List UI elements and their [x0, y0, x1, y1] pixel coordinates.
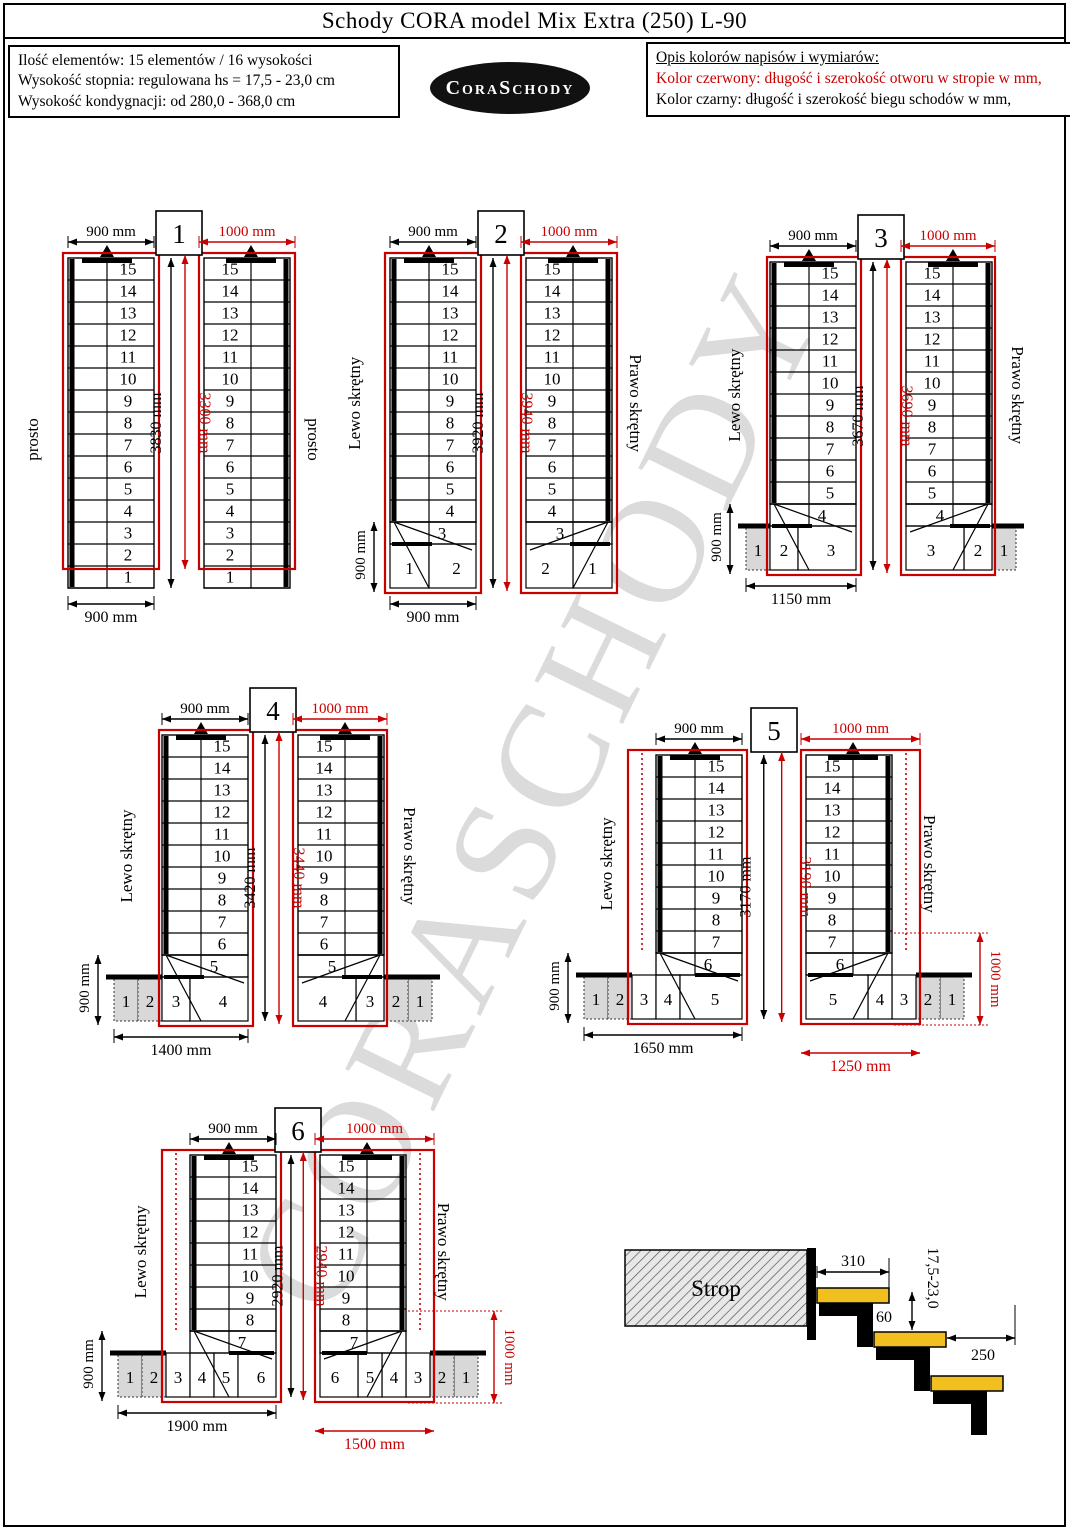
step-number: 13 — [822, 308, 839, 327]
stringer-line — [164, 736, 169, 954]
bottom-dim-black: 900 mm — [407, 609, 460, 626]
left-variant-label: prosto — [23, 418, 42, 461]
stringer-line — [400, 1156, 405, 1330]
length-dim-red: 3940 mm — [518, 393, 535, 454]
length-dim-black: 2920 mm — [269, 1245, 286, 1306]
legend-heading: Opis kolorów napisów i wymiarów: — [656, 48, 1064, 69]
direction-arrow-icon — [194, 722, 208, 734]
step-number: 1 — [592, 990, 601, 1009]
bottom-dim-red: 1500 mm — [344, 1436, 405, 1453]
stringer-line — [70, 259, 75, 587]
length-dim-black: 3830 mm — [148, 392, 165, 453]
step-number: 5 — [928, 484, 937, 503]
step-number: 11 — [924, 352, 940, 371]
stair-diagram-6: 1234567151413121110981234567151413121110… — [81, 1108, 517, 1453]
step-number: 8 — [342, 1311, 351, 1330]
step-number: 9 — [826, 396, 835, 415]
top-dim-red: 1000 mm — [311, 701, 368, 717]
step-number: 4 — [198, 1368, 207, 1387]
step-number: 8 — [826, 418, 835, 437]
flight-outline — [68, 258, 154, 588]
step-number: 14 — [442, 282, 460, 301]
step-number: 13 — [242, 1201, 259, 1220]
step-number: 3 — [827, 541, 836, 560]
top-dim-red: 1000 mm — [832, 721, 889, 737]
landing-edge — [828, 756, 878, 761]
flight-outline — [906, 262, 992, 504]
step-number: 1 — [126, 1368, 135, 1387]
step-number: 10 — [442, 370, 459, 389]
step-number: 5 — [124, 480, 133, 499]
landing-edge — [548, 259, 598, 264]
step-number: 9 — [218, 869, 227, 888]
rise-range-dim: 17,5-23,0 — [924, 1247, 941, 1308]
tread-depth-dim: 310 — [841, 1253, 865, 1270]
step-number: 6 — [257, 1368, 266, 1387]
side-dim-red: 1000 mm — [987, 950, 1003, 1007]
step-number: 1 — [124, 568, 133, 587]
right-variant-label: Prawo skrętny — [434, 1203, 453, 1301]
step-number: 7 — [320, 913, 329, 932]
side-dim-black: 900 mm — [353, 530, 369, 580]
length-dim-red: 3190 mm — [796, 857, 813, 918]
step-number: 7 — [928, 440, 937, 459]
step-number: 6 — [124, 458, 133, 477]
right-variant-label: prosto — [304, 418, 323, 461]
landing-edge — [204, 1156, 254, 1161]
stringer-line — [886, 756, 891, 952]
ceiling-slab-label: Strop — [691, 1276, 741, 1301]
stringer-line — [192, 1156, 197, 1330]
step-number: 4 — [548, 502, 557, 521]
step-number: 3 — [900, 990, 909, 1009]
step-number: 1 — [1000, 541, 1009, 560]
info-line-step-height: Wysokość stopnia: regulowana hs = 17,5 -… — [18, 71, 390, 91]
drawing-area: 1514131211109876543211514131211109876543… — [0, 0, 1070, 1530]
step-number: 13 — [120, 304, 137, 323]
landing-edge — [784, 263, 834, 268]
flight-5-right: 123456151413121110987 — [801, 742, 972, 1024]
step-number: 6 — [446, 458, 455, 477]
side-dim-black: 900 mm — [81, 1339, 97, 1389]
step-number: 9 — [446, 392, 455, 411]
length-dim-red: 3300 mm — [196, 393, 213, 454]
cora-schody-logo: CoraSchody — [430, 62, 590, 114]
step-number: 4 — [446, 502, 455, 521]
length-dim-black: 3420 mm — [242, 847, 259, 908]
step-number: 8 — [320, 891, 329, 910]
step-number: 13 — [924, 308, 941, 327]
step-number: 7 — [218, 913, 227, 932]
diagram-number: 4 — [266, 696, 280, 726]
step-number: 11 — [822, 352, 838, 371]
left-variant-label: Lewo skrętny — [345, 356, 364, 450]
flight-outline — [770, 262, 856, 504]
direction-arrow-icon — [244, 245, 258, 257]
step-number: 11 — [824, 845, 840, 864]
step-number: 9 — [342, 1289, 351, 1308]
step-number: 4 — [124, 502, 133, 521]
step-number: 3 — [414, 1368, 423, 1387]
length-dim-black: 3170 mm — [737, 856, 754, 917]
flight-3-left: 123415141312111098765 — [738, 249, 861, 575]
stair-drawing-page: Schody CORA model Mix Extra (250) L-90 I… — [0, 0, 1070, 1530]
step-number: 2 — [124, 546, 133, 565]
length-dim-black: 3920 mm — [470, 392, 487, 453]
top-dim-red: 1000 mm — [919, 228, 976, 244]
step-number: 13 — [708, 801, 725, 820]
landing-edge — [226, 259, 276, 264]
stair-diagram-4: 1234515141312111098761234515141312111098… — [77, 688, 440, 1059]
top-dim-red: 1000 mm — [346, 1121, 403, 1137]
step-number: 11 — [242, 1245, 258, 1264]
step-number: 14 — [242, 1179, 260, 1198]
step-number: 6 — [826, 462, 835, 481]
step-number: 4 — [390, 1368, 399, 1387]
step-number: 14 — [822, 286, 840, 305]
step-number: 3 — [927, 541, 936, 560]
step-number: 9 — [712, 889, 721, 908]
step-number: 12 — [242, 1223, 259, 1242]
direction-arrow-icon — [688, 742, 702, 754]
step-number: 10 — [316, 847, 333, 866]
step-number: 5 — [366, 1368, 375, 1387]
step-number: 12 — [120, 326, 137, 345]
flight-6-right: 123456715141312111098 — [315, 1142, 486, 1402]
step-number: 9 — [320, 869, 329, 888]
step-number: 4 — [219, 992, 228, 1011]
overlap-dim: 60 — [876, 1309, 892, 1326]
right-variant-label: Prawo skrętny — [400, 807, 419, 905]
step-number: 1 — [588, 559, 597, 578]
step-number: 1 — [462, 1368, 471, 1387]
length-dim-black: 3670 mm — [850, 385, 867, 446]
top-dim-black: 900 mm — [788, 228, 838, 244]
logo-text: CoraSchody — [446, 77, 575, 100]
bottom-dim-black: 1650 mm — [633, 1040, 694, 1057]
length-dim-red: 2940 mm — [313, 1246, 330, 1307]
step-number: 4 — [664, 990, 673, 1009]
page-title: Schody CORA model Mix Extra (250) L-90 — [322, 8, 747, 34]
step-number: 1 — [754, 541, 763, 560]
bottom-dim-black: 1150 mm — [771, 591, 832, 608]
step-number: 11 — [708, 845, 724, 864]
flight-1-left: 151413121110987654321 — [63, 245, 159, 588]
landing-edge — [670, 756, 720, 761]
step-number: 11 — [338, 1245, 354, 1264]
step-number: 14 — [544, 282, 562, 301]
step-number: 14 — [708, 779, 726, 798]
top-dim-black: 900 mm — [180, 701, 230, 717]
diagram-number: 3 — [874, 223, 888, 253]
top-dim-red: 1000 mm — [540, 224, 597, 240]
step-number: 6 — [320, 935, 329, 954]
flight-2-left: 123151413121110987654 — [385, 245, 481, 593]
top-dim-black: 900 mm — [674, 721, 724, 737]
step-number: 11 — [120, 348, 136, 367]
step-number: 10 — [222, 370, 239, 389]
step-number: 6 — [226, 458, 235, 477]
direction-arrow-icon — [946, 249, 960, 261]
step-number: 2 — [146, 992, 155, 1011]
step-number: 2 — [616, 990, 625, 1009]
diagram-number: 1 — [172, 219, 186, 249]
step-number: 6 — [218, 935, 227, 954]
flight-outline — [806, 755, 892, 953]
direction-arrow-icon — [222, 1142, 236, 1154]
step-number: 5 — [711, 990, 720, 1009]
step-number: 7 — [124, 436, 133, 455]
color-legend: Opis kolorów napisów i wymiarów: Kolor c… — [646, 42, 1070, 117]
step-number: 2 — [226, 546, 235, 565]
step-number: 10 — [338, 1267, 355, 1286]
bottom-dim-red: 1250 mm — [830, 1058, 891, 1075]
flight-3-right: 123415141312111098765 — [901, 249, 1024, 575]
bottom-dim-black: 900 mm — [85, 609, 138, 626]
step-number: 1 — [416, 992, 425, 1011]
step-number: 1 — [948, 990, 957, 1009]
step-number: 9 — [246, 1289, 255, 1308]
top-dim-black: 900 mm — [408, 224, 458, 240]
landing-edge — [176, 736, 226, 741]
stair-diagram-2: 1231514131211109876541231514131211109876… — [345, 211, 645, 626]
step-number: 13 — [544, 304, 561, 323]
step-number: 10 — [242, 1267, 259, 1286]
stringer-line — [378, 736, 383, 954]
stringer-line — [606, 259, 611, 521]
step-number: 13 — [824, 801, 841, 820]
step-number: 5 — [226, 480, 235, 499]
diagram-number: 5 — [767, 716, 781, 746]
side-dim-red: 1000 mm — [501, 1328, 517, 1385]
step-number: 14 — [222, 282, 240, 301]
direction-arrow-icon — [422, 245, 436, 257]
step-number: 7 — [226, 436, 235, 455]
left-variant-label: Lewo skrętny — [597, 817, 616, 911]
step-number: 5 — [548, 480, 557, 499]
step-number: 14 — [824, 779, 842, 798]
step-number: 14 — [120, 282, 138, 301]
step-number: 2 — [438, 1368, 447, 1387]
step-number: 9 — [124, 392, 133, 411]
step-number: 14 — [214, 759, 232, 778]
direction-arrow-icon — [846, 742, 860, 754]
flight-outline — [656, 755, 742, 953]
stringer-line — [986, 263, 991, 503]
tread — [874, 1332, 946, 1347]
diagram-number: 6 — [291, 1116, 305, 1146]
info-box: Ilość elementów: 15 elementów / 16 wysok… — [8, 45, 400, 118]
step-number: 12 — [442, 326, 459, 345]
step-number: 11 — [214, 825, 230, 844]
step-number: 7 — [712, 933, 721, 952]
step-number: 11 — [222, 348, 238, 367]
direction-arrow-icon — [360, 1142, 374, 1154]
step-number: 3 — [172, 992, 181, 1011]
stair-diagram-3: 1234151413121110987651234151413121110987… — [709, 215, 1027, 608]
right-variant-label: Prawo skrętny — [626, 354, 645, 452]
step-number: 13 — [316, 781, 333, 800]
step-number: 2 — [974, 541, 983, 560]
right-variant-label: Prawo skrętny — [920, 815, 939, 913]
info-line-storey-height: Wysokość kondygnacji: od 280,0 - 368,0 c… — [18, 92, 390, 112]
step-number: 6 — [331, 1368, 340, 1387]
step-number: 14 — [316, 759, 334, 778]
going-dim: 250 — [971, 1347, 995, 1364]
step-number: 10 — [824, 867, 841, 886]
step-number: 12 — [214, 803, 231, 822]
step-number: 9 — [548, 392, 557, 411]
step-number: 12 — [544, 326, 561, 345]
step-number: 10 — [708, 867, 725, 886]
step-number: 8 — [828, 911, 837, 930]
side-dim-black: 900 mm — [547, 961, 563, 1011]
step-number: 2 — [924, 990, 933, 1009]
stair-diagram-5: 1234561514131211109871234561514131211109… — [547, 708, 1003, 1075]
flight-outline — [204, 258, 290, 588]
step-number: 3 — [640, 990, 649, 1009]
step-number: 11 — [316, 825, 332, 844]
step-number: 7 — [826, 440, 835, 459]
step-number: 13 — [222, 304, 239, 323]
step-number: 9 — [928, 396, 937, 415]
step-number: 10 — [214, 847, 231, 866]
step-number: 13 — [338, 1201, 355, 1220]
step-number: 7 — [548, 436, 557, 455]
landing-edge — [404, 259, 454, 264]
step-number: 6 — [548, 458, 557, 477]
right-variant-label: Prawo skrętny — [1008, 346, 1027, 444]
step-number: 2 — [452, 559, 461, 578]
step-number: 5 — [829, 990, 838, 1009]
stringer-line — [658, 756, 663, 952]
step-number: 6 — [928, 462, 937, 481]
step-number: 8 — [226, 414, 235, 433]
legend-black-line: Kolor czarny: długość i szerokość biegu … — [656, 90, 1064, 111]
stringer-line — [284, 259, 289, 587]
step-number: 9 — [828, 889, 837, 908]
step-number: 8 — [928, 418, 937, 437]
step-number: 2 — [780, 541, 789, 560]
step-number: 13 — [442, 304, 459, 323]
landing-edge — [928, 263, 978, 268]
tread — [817, 1288, 889, 1303]
section-detail: Strop31017,5-23,060250 — [625, 1247, 1015, 1435]
step-number: 7 — [828, 933, 837, 952]
step-number: 14 — [338, 1179, 356, 1198]
step-number: 12 — [338, 1223, 355, 1242]
step-number: 3 — [366, 992, 375, 1011]
side-dim-black: 900 mm — [77, 963, 93, 1013]
step-number: 8 — [246, 1311, 255, 1330]
step-number: 8 — [712, 911, 721, 930]
step-number: 8 — [124, 414, 133, 433]
step-number: 12 — [822, 330, 839, 349]
step-number: 10 — [120, 370, 137, 389]
step-number: 12 — [708, 823, 725, 842]
landing-edge — [342, 1156, 392, 1161]
step-number: 12 — [316, 803, 333, 822]
step-number: 7 — [446, 436, 455, 455]
legend-red-line: Kolor czerwony: długość i szerokość otwo… — [656, 69, 1064, 90]
step-number: 3 — [226, 524, 235, 543]
step-number: 8 — [446, 414, 455, 433]
left-variant-label: Lewo skrętny — [131, 1205, 150, 1299]
stringer-line — [772, 263, 777, 503]
step-number: 10 — [822, 374, 839, 393]
step-number: 2 — [392, 992, 401, 1011]
step-number: 8 — [548, 414, 557, 433]
left-variant-label: Lewo skrętny — [725, 348, 744, 442]
step-number: 1 — [122, 992, 131, 1011]
title-bar: Schody CORA model Mix Extra (250) L-90 — [3, 3, 1066, 39]
diagram-number: 2 — [494, 219, 508, 249]
step-number: 12 — [222, 326, 239, 345]
step-number: 3 — [174, 1368, 183, 1387]
bottom-dim-black: 1400 mm — [151, 1042, 212, 1059]
step-number: 11 — [544, 348, 560, 367]
landing-edge — [82, 259, 132, 264]
step-number: 3 — [124, 524, 133, 543]
length-dim-red: 3440 mm — [290, 848, 307, 909]
step-number: 1 — [226, 568, 235, 587]
step-number: 1 — [405, 559, 414, 578]
step-number: 5 — [826, 484, 835, 503]
step-number: 5 — [446, 480, 455, 499]
top-dim-red: 1000 mm — [218, 224, 275, 240]
step-number: 11 — [442, 348, 458, 367]
bottom-dim-black: 1900 mm — [167, 1418, 228, 1435]
step-number: 8 — [218, 891, 227, 910]
direction-arrow-icon — [100, 245, 114, 257]
direction-arrow-icon — [566, 245, 580, 257]
stringer-line — [392, 259, 397, 521]
step-number: 4 — [226, 502, 235, 521]
top-dim-black: 900 mm — [208, 1121, 258, 1137]
landing-edge — [320, 736, 370, 741]
step-number: 5 — [222, 1368, 231, 1387]
stair-diagram-1: 1514131211109876543211514131211109876543… — [23, 211, 323, 626]
tread — [931, 1376, 1003, 1391]
step-number: 2 — [150, 1368, 159, 1387]
step-number: 9 — [226, 392, 235, 411]
length-dim-red: 3690 mm — [898, 386, 915, 447]
side-dim-black: 900 mm — [709, 512, 725, 562]
step-number: 14 — [924, 286, 942, 305]
step-number: 2 — [541, 559, 550, 578]
direction-arrow-icon — [802, 249, 816, 261]
info-line-elements: Ilość elementów: 15 elementów / 16 wysok… — [18, 51, 390, 71]
step-number: 4 — [319, 992, 328, 1011]
left-variant-label: Lewo skrętny — [117, 809, 136, 903]
step-number: 4 — [876, 990, 885, 1009]
step-number: 13 — [214, 781, 231, 800]
step-number: 12 — [824, 823, 841, 842]
step-number: 12 — [924, 330, 941, 349]
top-dim-black: 900 mm — [86, 224, 136, 240]
step-number: 10 — [924, 374, 941, 393]
direction-arrow-icon — [338, 722, 352, 734]
step-number: 10 — [544, 370, 561, 389]
